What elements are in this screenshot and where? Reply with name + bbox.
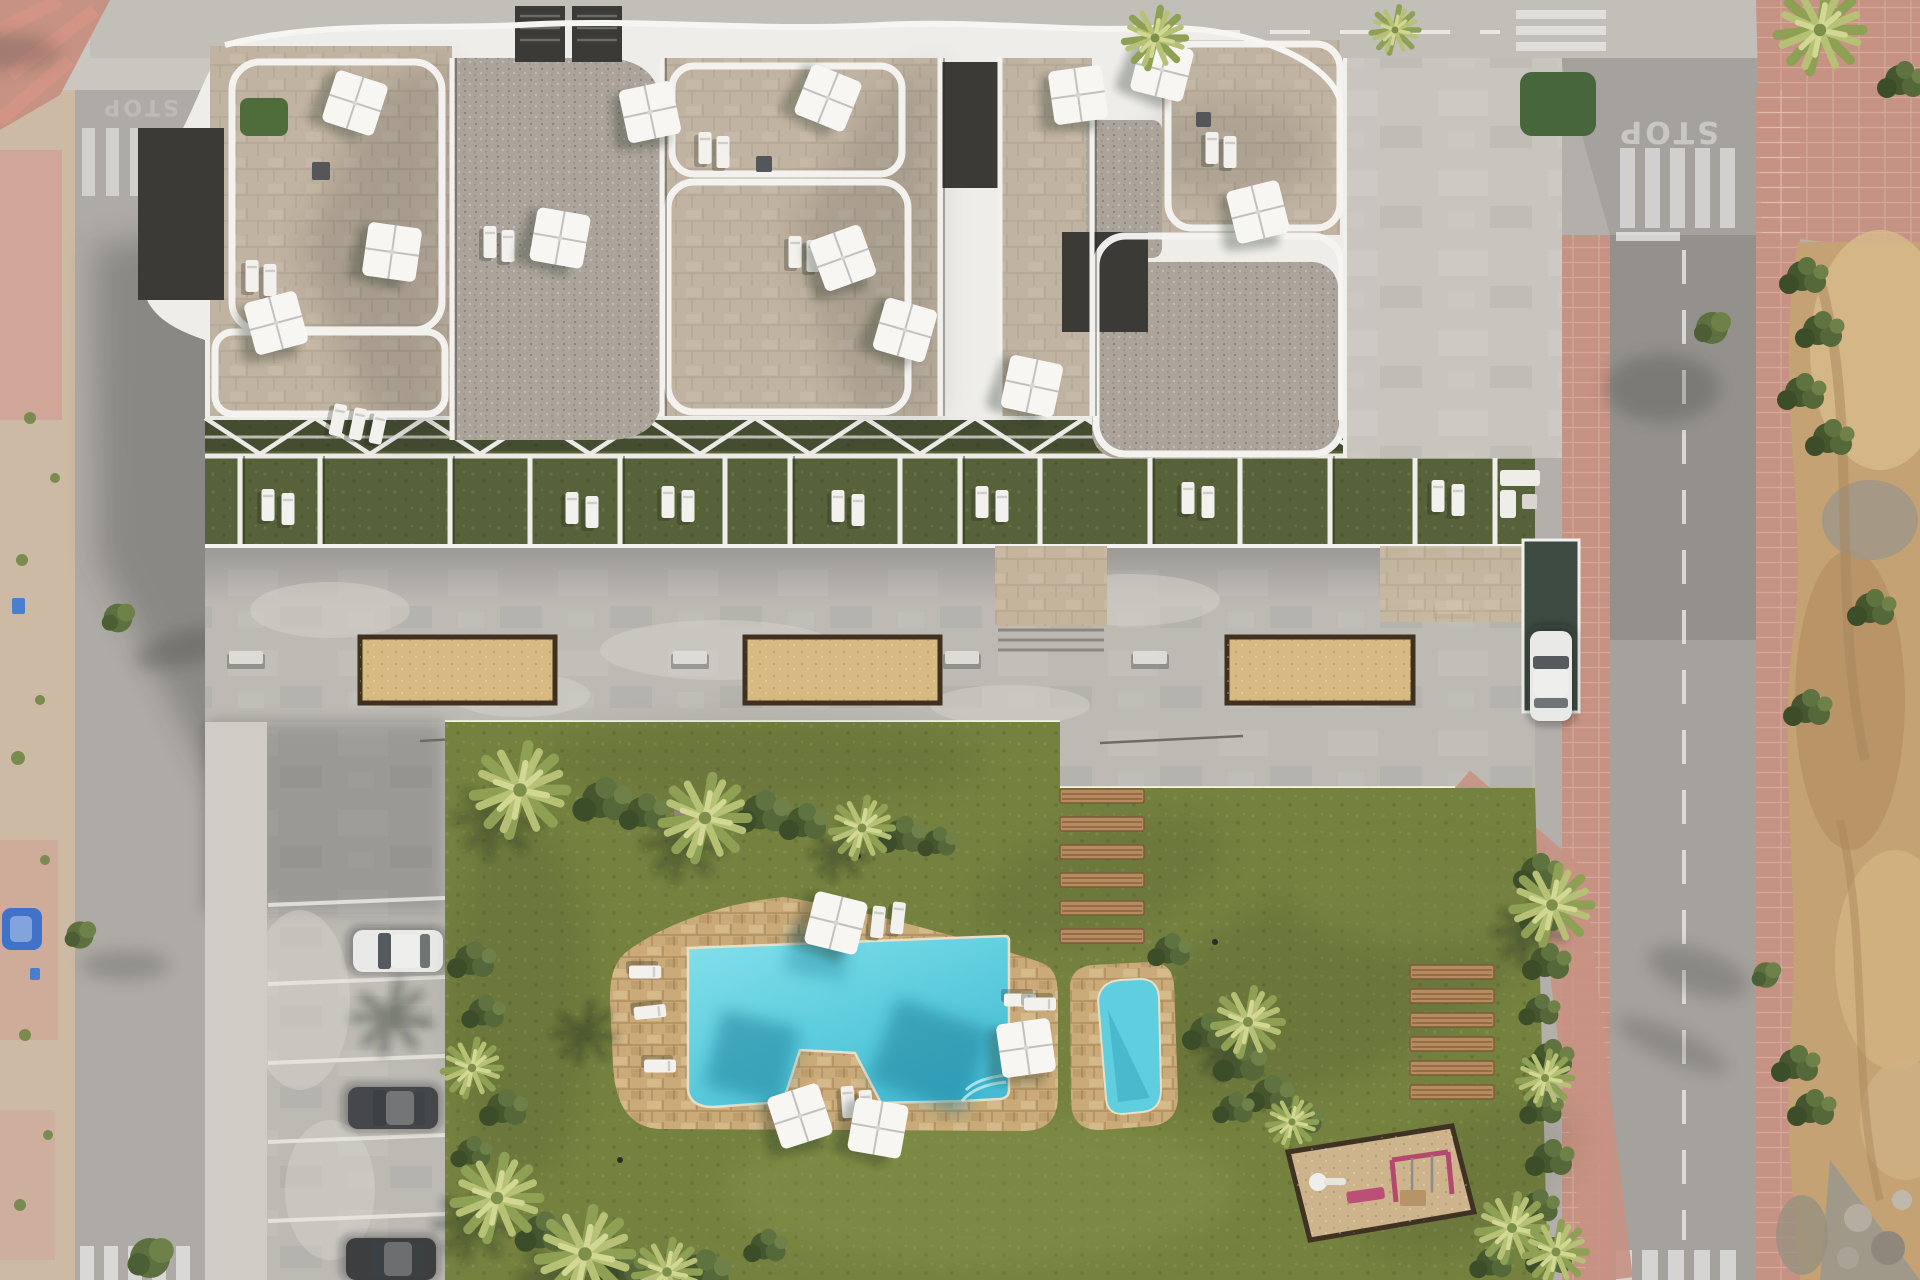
corner-stripes	[0, 0, 95, 120]
deck-light-patches	[250, 574, 1220, 1260]
parked-car-dark	[342, 1083, 442, 1131]
gravel-texture	[452, 58, 1338, 458]
dirt-texture	[1776, 230, 1920, 1280]
crosswalk-right-top	[1620, 148, 1735, 228]
driveway-ramp	[1523, 540, 1579, 712]
left-road	[75, 90, 207, 1280]
kids-pool-deck	[1070, 962, 1178, 1130]
lawn-sunlit	[720, 850, 1550, 1270]
playground-equipment-white	[1309, 1173, 1327, 1191]
patio-loungers	[257, 480, 1465, 531]
communal-deck	[205, 415, 1610, 1280]
pink-tile-texture	[1562, 0, 1920, 1280]
wooden-steps	[1060, 789, 1144, 943]
asphalt-base	[0, 0, 1920, 1280]
pool-steps	[962, 1075, 1007, 1101]
road-shadows	[0, 34, 1754, 1084]
right-intersection	[1560, 58, 1790, 235]
parking-area	[205, 722, 447, 1280]
gravel-roofs	[452, 58, 1338, 458]
aerial-render: STOP STOP	[0, 0, 1920, 1280]
sand-planters	[360, 637, 1413, 703]
pool-water-shadows	[704, 925, 992, 1114]
crosswalk-bottom-left	[80, 1246, 190, 1280]
charcoal-roof-blocks	[138, 6, 1148, 332]
terrace-texture	[210, 40, 1340, 416]
street-trees	[65, 312, 1782, 1278]
planter-texture	[360, 637, 1413, 703]
lawn-shading	[450, 720, 1604, 1280]
top-road	[90, 0, 1790, 58]
pergola-beams	[205, 417, 1535, 456]
parked-car-white	[347, 926, 447, 974]
deck-bench	[1131, 651, 1169, 669]
shadow-on-parking	[205, 722, 445, 912]
building-shadow-on-deck	[205, 545, 1535, 605]
shrub-bands	[447, 777, 1575, 1280]
deck-bench	[227, 651, 265, 669]
dirt-ground	[1787, 242, 1920, 1280]
crosswalk-bottom-right	[1616, 1250, 1736, 1280]
playground	[1288, 1126, 1474, 1240]
rubble-pile	[1820, 1160, 1920, 1280]
terrace-shadows	[300, 60, 1320, 440]
wooden-benches	[1410, 965, 1494, 1099]
roof-loungers	[241, 132, 1237, 448]
parapet-loops	[215, 44, 1342, 454]
blue-bin-2	[30, 968, 40, 980]
building-base	[140, 23, 1347, 417]
ground-roads: STOP STOP	[0, 0, 1920, 1280]
entry-walkway	[995, 546, 1107, 626]
pool-area	[610, 886, 1178, 1170]
roof-slats	[520, 16, 617, 40]
parking-lines	[268, 898, 445, 1221]
stop-road-marking: STOP	[1617, 114, 1719, 149]
stop-road-marking-left: STOP	[101, 94, 179, 119]
playground-frame	[1392, 1152, 1452, 1202]
parking-sidewalk	[205, 722, 267, 1280]
palm-trees	[443, 0, 1862, 1280]
crosswalk-top-left	[82, 128, 191, 196]
palm-shadows	[354, 780, 1563, 1280]
pink-sidewalks	[0, 0, 1920, 1280]
driveway	[1455, 540, 1610, 1280]
pool-umbrella	[785, 886, 868, 966]
pool-loungers	[626, 901, 1056, 1126]
outer-parapet	[225, 23, 1347, 417]
unit-dividers	[452, 58, 1092, 440]
entry-steps	[998, 630, 1104, 650]
rocks	[674, 803, 692, 821]
right-road	[1610, 90, 1756, 1280]
green-roof-patch	[240, 98, 288, 136]
intersection-light-wash	[0, 0, 760, 242]
lawn-garden	[445, 720, 1604, 1280]
garden-row	[205, 415, 1535, 545]
pool-umbrella	[751, 1082, 837, 1165]
blue-bin	[12, 598, 25, 614]
street-weeds	[11, 412, 60, 1211]
road-markings: STOP STOP	[80, 10, 1736, 1280]
pool-water	[688, 936, 1009, 1107]
right-terrace-paving	[1380, 546, 1523, 622]
playground-box	[1400, 1190, 1426, 1206]
deck-bench	[671, 651, 709, 669]
pool-umbrella	[980, 1018, 1058, 1092]
dirt-lot	[1771, 61, 1920, 1280]
lawn	[445, 722, 1548, 1280]
deck-bench	[1433, 601, 1471, 619]
kids-pool-shadow	[1108, 1010, 1150, 1102]
lawn-lamps	[617, 853, 1218, 1163]
north-east-paving	[1345, 58, 1562, 458]
deck-railing	[445, 722, 1455, 788]
patio-sofa-set	[1500, 470, 1540, 518]
pink-path	[1455, 788, 1610, 1280]
dirt-scrub	[1771, 61, 1920, 1126]
corner-green-patch	[1520, 72, 1596, 136]
aerial-screenshot: STOP STOP	[0, 0, 1920, 1280]
parked-car-dark-2	[340, 1234, 440, 1280]
pool-umbrella	[829, 1094, 909, 1170]
left-sidewalk	[0, 90, 75, 1280]
pergola-shadow	[205, 415, 1535, 451]
driveway-car-white	[1528, 625, 1576, 725]
playground-bench-pink	[1346, 1187, 1385, 1204]
deck-drain-lines	[420, 732, 1243, 743]
vegetation	[65, 0, 1863, 1280]
small-blue-car	[2, 908, 42, 950]
apartment-building	[138, 6, 1596, 458]
deck-bench	[943, 651, 981, 669]
pool-deck	[610, 897, 1058, 1131]
roof-terraces	[210, 40, 1340, 416]
roof-umbrellas	[228, 33, 1294, 428]
crosswalk-top-road	[1516, 10, 1606, 51]
deck-concrete	[205, 545, 1535, 1280]
roof-tables	[312, 112, 1211, 180]
stop-bar	[1616, 232, 1680, 241]
kids-pool-water	[1098, 979, 1161, 1114]
blue-car-roof	[10, 916, 32, 942]
patio-dividers	[240, 456, 1495, 545]
